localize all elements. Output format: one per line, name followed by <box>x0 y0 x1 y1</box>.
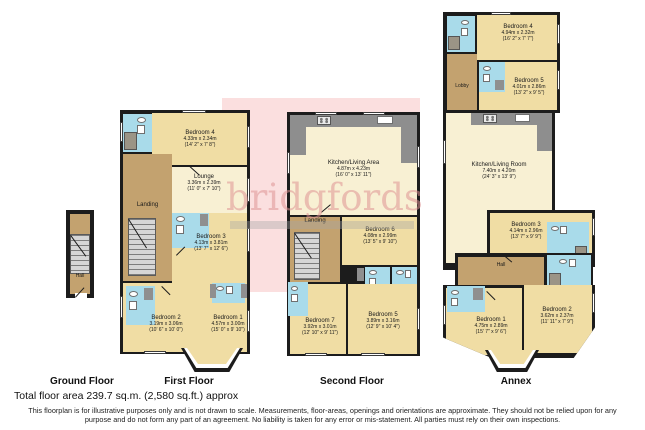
room-label-bedroom5: Bedroom 5 3.89m x 3.16m (12' 9" x 10' 4"… <box>351 312 415 331</box>
toilet <box>176 225 184 234</box>
room-label-kitchen-living: Kitchen/Living Room 7.40m x 4.20m (24' 3… <box>449 162 549 181</box>
toilet <box>569 259 576 267</box>
window <box>315 112 337 115</box>
room-label-lobby: Lobby <box>447 84 477 90</box>
sink <box>291 286 298 291</box>
window <box>120 122 123 142</box>
window <box>417 146 420 168</box>
room-label-bedroom5: Bedroom 5 4.01m x 2.86m (13' 2" x 9' 5") <box>501 78 557 97</box>
window <box>592 218 595 236</box>
sink <box>396 270 404 275</box>
storage-box <box>210 284 216 298</box>
floor-label-annex: Annex <box>464 376 568 387</box>
room-label-bedroom3: Bedroom 3 4.13m x 3.81m (13' 7" x 12' 6"… <box>178 234 244 253</box>
hob <box>317 116 331 125</box>
room-label-bedroom2: Bedroom 2 3.62m x 2.37m (11' 11" x 7' 9"… <box>527 307 587 326</box>
hob <box>483 114 497 123</box>
toilet <box>451 298 458 306</box>
window <box>491 12 511 15</box>
room-lobby <box>447 54 477 110</box>
window <box>443 140 446 164</box>
room-dims-imperial: (13' 2" x 9' 5") <box>501 91 557 97</box>
watermark-underline-band <box>230 221 414 229</box>
room-dims-imperial: (24' 3" x 13' 9") <box>449 175 549 181</box>
kitchen-counter <box>290 127 306 155</box>
window <box>305 353 327 356</box>
window <box>557 24 560 44</box>
toilet <box>226 286 233 294</box>
shower <box>448 36 460 50</box>
room-name: Hall <box>458 263 544 269</box>
room-label-bedroom1: Bedroom 1 4.57m x 3.00m (15' 0" x 9' 10"… <box>206 315 250 334</box>
sink <box>129 291 138 297</box>
annex-plan: Bedroom 4 4.94m x 2.32m (16' 2" x 7' 7")… <box>443 12 595 378</box>
kitchen-sink <box>515 114 530 122</box>
room-label-hall: Hall <box>66 274 94 280</box>
disclaimer-line-1: This floorplan is for illustrative purpo… <box>0 406 645 415</box>
room-dims-imperial: (12' 9" x 10' 4") <box>351 325 415 331</box>
sink <box>461 20 469 25</box>
storage-box <box>473 288 483 300</box>
room-label-bedroom6: Bedroom 6 4.08m x 2.99m (13' 5" x 9' 10"… <box>347 227 413 246</box>
room-dims-imperial: (10' 6" x 10' 0") <box>135 328 197 334</box>
window <box>557 70 560 90</box>
room-dims-imperial: (13' 5" x 9' 10") <box>347 240 413 246</box>
first-floor-plan: Bedroom 4 4.33m x 2.34m (14' 2" x 7' 8")… <box>120 110 250 374</box>
kitchen-counter <box>401 127 417 163</box>
room-dims-imperial: (11' 11" x 7' 9") <box>527 320 587 326</box>
room-dims-imperial: (14' 2" x 7' 8") <box>162 143 238 149</box>
storage-box <box>144 288 153 300</box>
room-name: Landing <box>123 202 172 209</box>
room-dims-imperial: (16' 2" x 7' 7") <box>481 37 555 43</box>
window <box>363 112 385 115</box>
floor-label-second: Second Floor <box>300 376 404 387</box>
window <box>592 293 595 313</box>
floor-label-first: First Floor <box>137 376 241 387</box>
second-floor-plan: Kitchen/Living Area 4.87m x 4.23m (16' 0… <box>287 112 420 358</box>
ground-floor-plan: Hall <box>66 210 94 298</box>
room-label-bedroom4: Bedroom 4 4.94m x 2.32m (16' 2" x 7' 7") <box>481 24 555 43</box>
toilet <box>129 301 137 310</box>
window <box>247 126 250 148</box>
disclaimer: This floorplan is for illustrative purpo… <box>0 406 645 424</box>
sink <box>483 66 491 71</box>
window <box>247 228 250 252</box>
room-name: Lobby <box>447 84 477 90</box>
window <box>417 308 420 330</box>
window <box>144 351 166 354</box>
kitchen-counter <box>537 125 552 151</box>
floorplan-page: Hall Bedroom 4 4.33m x 2.34m (14' 2" x 7… <box>0 0 645 430</box>
toilet <box>560 226 567 234</box>
room-label-bedroom7: Bedroom 7 3.92m x 3.01m (12' 10" x 9' 11… <box>295 318 345 337</box>
toilet <box>405 270 411 278</box>
window <box>120 296 123 318</box>
floor-label-ground: Ground Floor <box>30 376 134 387</box>
toilet <box>291 294 298 302</box>
room-label-bedroom3: Bedroom 3 4.14m x 2.96m (13' 7" x 9' 9") <box>495 222 557 241</box>
kitchen-counter <box>290 115 417 127</box>
toilet <box>461 28 468 36</box>
window <box>443 305 446 325</box>
total-floor-area: Total floor area 239.7 sq.m. (2,580 sq.f… <box>14 390 238 402</box>
room-label-bedroom4: Bedroom 4 4.33m x 2.34m (14' 2" x 7' 8") <box>162 130 238 149</box>
storage-box <box>200 214 208 226</box>
shower <box>124 132 137 150</box>
window <box>287 152 290 174</box>
sink <box>369 270 377 275</box>
window <box>182 110 206 113</box>
room-label-bedroom1: Bedroom 1 4.75m x 2.89m (15' 7" x 9' 6") <box>461 317 521 336</box>
room-label-landing: Landing <box>123 202 172 209</box>
room-dims-imperial: (15' 7" x 9' 6") <box>461 330 521 336</box>
room-dims-imperial: (15' 0" x 9' 10") <box>206 328 250 334</box>
sink <box>451 290 459 295</box>
room-label-bedroom2: Bedroom 2 3.19m x 3.06m (10' 6" x 10' 0"… <box>135 315 197 334</box>
room-label-hall: Hall <box>458 263 544 269</box>
storage-box <box>357 268 364 281</box>
toilet <box>137 125 145 134</box>
room-dims-imperial: (12' 10" x 9' 11") <box>295 331 345 337</box>
toilet <box>483 74 490 82</box>
shower <box>549 273 561 287</box>
sink <box>216 286 224 291</box>
disclaimer-line-2: purpose and do not form any part of an a… <box>0 415 645 424</box>
storage-box <box>241 284 247 298</box>
sink <box>137 117 146 123</box>
window <box>361 353 385 356</box>
sink <box>559 259 567 264</box>
room-dims-imperial: (13' 7" x 9' 9") <box>495 235 557 241</box>
sink <box>176 216 185 222</box>
kitchen-sink <box>377 116 393 124</box>
room-dims-imperial: (13' 7" x 12' 6") <box>178 247 244 253</box>
watermark-text: bridgfords <box>226 176 422 219</box>
room-name: Hall <box>66 274 94 280</box>
